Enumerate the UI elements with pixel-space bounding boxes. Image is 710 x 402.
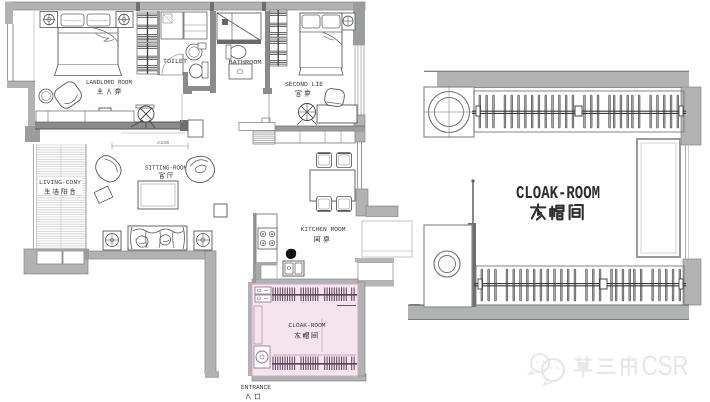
svg-text:2438: 2438 <box>157 141 170 146</box>
svg-text:ENTRANCE: ENTRANCE <box>241 384 271 391</box>
svg-text:SECOND LIE: SECOND LIE <box>285 81 323 88</box>
svg-text:KITCHEN ROOM: KITCHEN ROOM <box>301 226 346 233</box>
svg-text:LANDLORD ROOM: LANDLORD ROOM <box>86 79 132 86</box>
svg-text:SITTING-ROOM: SITTING-ROOM <box>145 165 187 172</box>
svg-text:CLOAK-ROOM: CLOAK-ROOM <box>516 184 600 204</box>
svg-text:LIVING-CONY: LIVING-CONY <box>39 179 81 186</box>
svg-text:CSR: CSR <box>642 350 689 381</box>
svg-text:CLOAK-ROOM: CLOAK-ROOM <box>289 322 326 329</box>
